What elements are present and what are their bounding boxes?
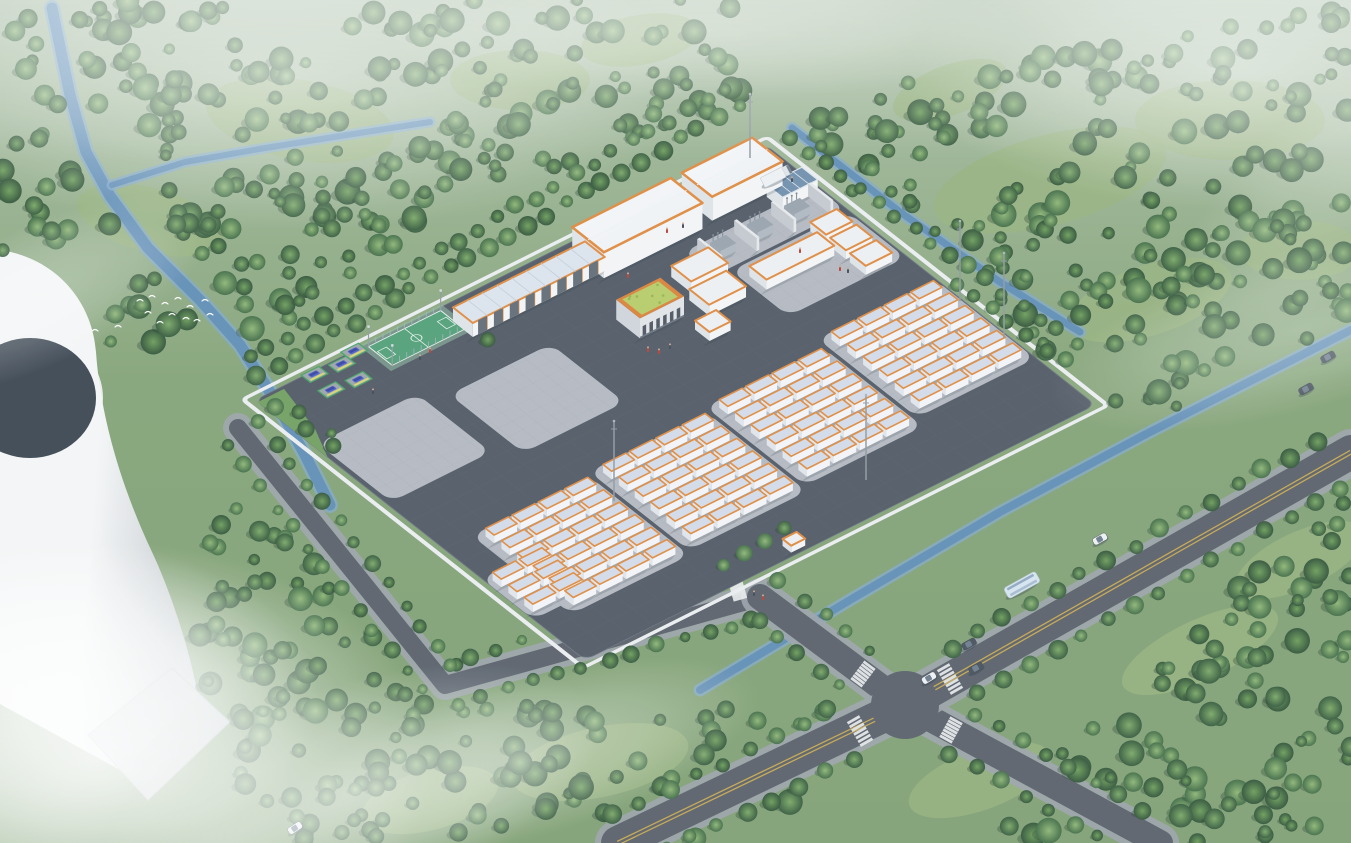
rendering-canvas [0,0,1351,843]
fog-layer [0,0,1351,843]
aerial-site-rendering [0,0,1351,843]
